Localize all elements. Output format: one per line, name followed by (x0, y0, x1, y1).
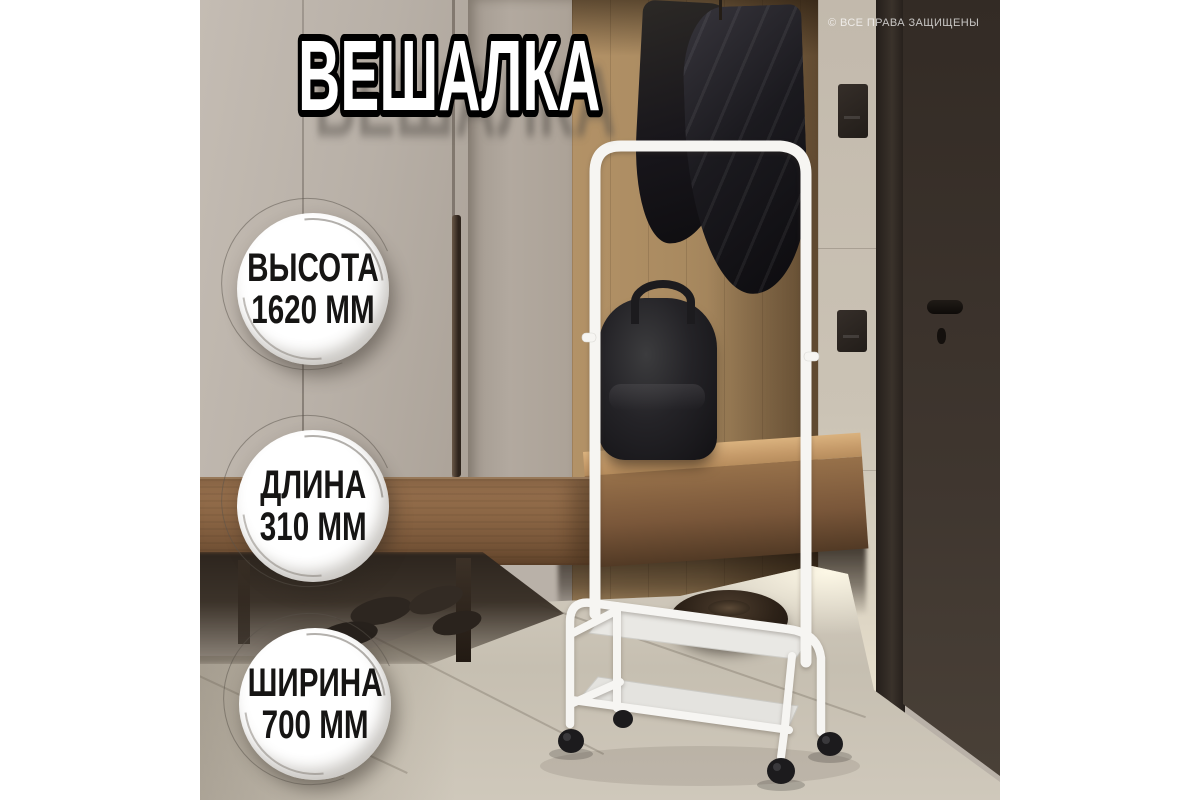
door-keyhole (937, 328, 946, 344)
title-block: ВЕШАЛКА ВЕШАЛКА (288, 6, 648, 166)
copyright-watermark: © ВСЕ ПРАВА ЗАЩИЩЕНЫ (828, 17, 1000, 29)
bench-front (585, 457, 869, 568)
tile-grout-line (818, 248, 880, 249)
page-title: ВЕШАЛКА (298, 19, 600, 131)
jacket-hook (719, 0, 722, 20)
robot-vacuum (670, 590, 788, 648)
dimension-badge-width: ШИРИНА 700 ММ (239, 628, 391, 780)
console-leg (238, 560, 250, 644)
backpack (599, 298, 717, 460)
dimension-badge-length: ДЛИНА 310 ММ (237, 430, 389, 582)
wardrobe-handle (452, 215, 461, 477)
dimension-badge-height: ВЫСОТА 1620 ММ (237, 213, 389, 365)
hallway-photo: ВЕШАЛКА ВЕШАЛКА © ВСЕ ПРАВА ЗАЩИЩЕНЫ ВЫС… (200, 0, 1000, 800)
light-switch (838, 84, 868, 138)
badge-height-label: ВЫСОТА (247, 247, 379, 289)
badge-length-label: ДЛИНА (260, 464, 366, 506)
badge-width-value: 700 ММ (262, 704, 369, 746)
badge-height-value: 1620 ММ (251, 289, 374, 331)
product-image-canvas: ВЕШАЛКА ВЕШАЛКА © ВСЕ ПРАВА ЗАЩИЩЕНЫ ВЫС… (0, 0, 1200, 800)
door-handle (927, 300, 963, 314)
door (903, 0, 1000, 800)
badge-length-value: 310 ММ (260, 506, 367, 548)
badge-width-label: ШИРИНА (248, 662, 383, 704)
light-switch (837, 310, 867, 352)
door-frame (876, 0, 905, 724)
